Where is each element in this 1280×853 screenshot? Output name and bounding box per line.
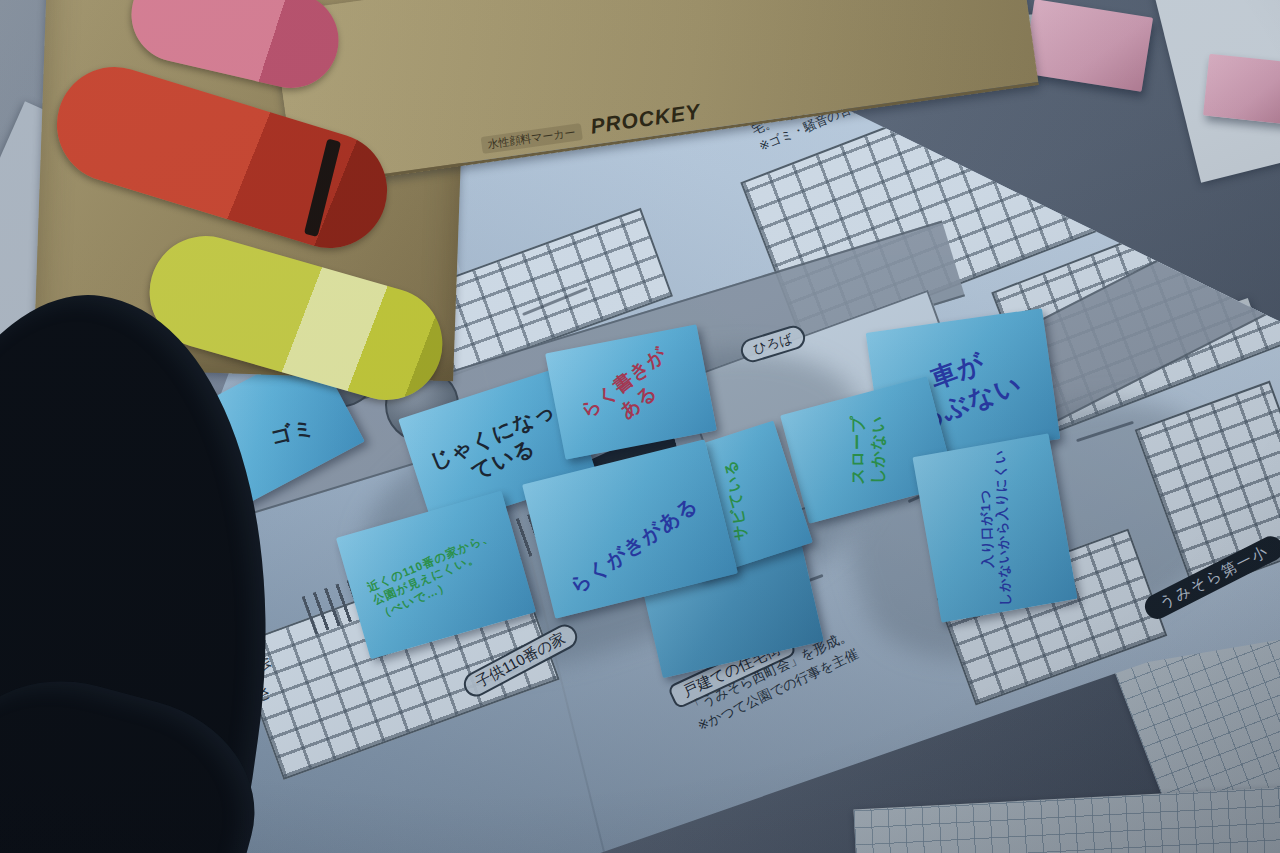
pink-tag [1023, 0, 1153, 92]
workshop-photo: 公営住宅 昭和30年代からある公営住 宅。「公営住宅自治会」を形成。 ※ゴミ・騒… [0, 0, 1280, 853]
note-text: 入り口が1つ しかないから入りにくい [976, 449, 1014, 607]
note-text: らくがきがある [565, 492, 702, 599]
note-text: スロープ しかない [848, 415, 888, 485]
pink-tag [1203, 54, 1280, 125]
note-line: スロープ [848, 415, 868, 485]
red-marker-clip [304, 138, 341, 236]
grid-paper-bottom [853, 787, 1280, 853]
marker-type-label: 水性顔料マーカー [481, 123, 583, 154]
note-text: らく書きが ある [576, 342, 685, 442]
note-text: ゴミ [268, 414, 318, 450]
note-text: 近くの110番の家から、 公園が見えにくい。 （べいで…） [365, 529, 506, 622]
note-line: しかない [868, 415, 888, 485]
sticky-note-entrance: 入り口が1つ しかないから入りにくい [912, 433, 1077, 622]
marker-brand-logo: PROCKEY [589, 99, 702, 138]
